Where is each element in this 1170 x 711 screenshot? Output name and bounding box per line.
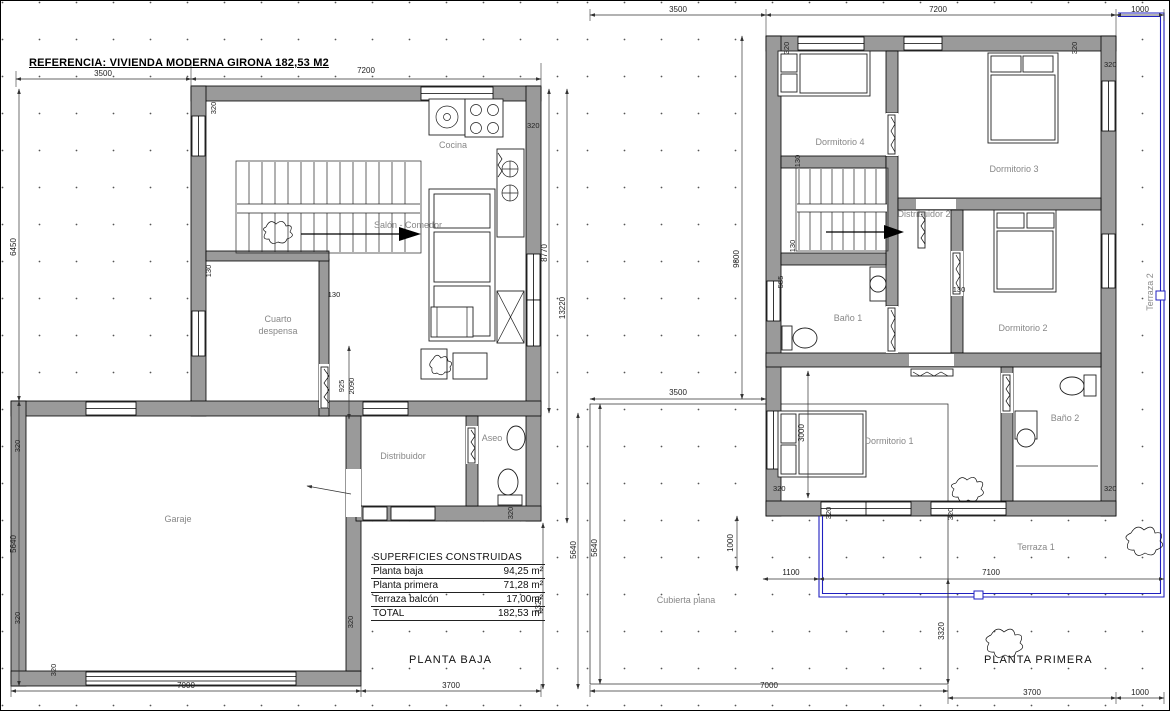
dim-9800: 9800: [732, 250, 741, 268]
dim-7000: 7000: [760, 681, 778, 690]
dim-7000: 7000: [177, 681, 195, 690]
washbasin-icon: [870, 276, 886, 292]
room-label-bano2: Baño 2: [1051, 413, 1080, 423]
wall-130: 130: [953, 285, 966, 294]
table-row: Terraza balcón 17,00m²: [371, 593, 545, 607]
dim-8770: 8770: [540, 244, 549, 262]
bed-icon-dorm2: [994, 210, 1056, 292]
caption-planta-baja: PLANTA BAJA: [409, 654, 492, 666]
sink-icon: [429, 99, 465, 135]
table-row: Planta baja 94,25 m²: [371, 565, 545, 579]
wall-320: 320: [1104, 484, 1117, 493]
room-label-dormitorio4: Dormitorio 4: [815, 137, 864, 147]
wall-320: 320: [527, 121, 540, 130]
wall-320: 320: [824, 507, 833, 520]
washbasin-icon: [1017, 429, 1035, 447]
room-label-distribuidor: Distribuidor: [380, 451, 426, 461]
dim-5640: 5640: [590, 539, 599, 557]
room-label-terraza2: Terraza 2: [1145, 273, 1155, 311]
dim-3700: 3700: [1023, 688, 1041, 697]
row-value: 94,25 m²: [504, 566, 543, 577]
toilet-icon: [498, 469, 518, 495]
door-leaf: [468, 428, 475, 463]
dim-3700: 3700: [442, 681, 460, 690]
dim-13220: 13220: [558, 296, 567, 319]
wall-320: 320: [1104, 60, 1117, 69]
row-value: 182,53 m²: [498, 608, 543, 619]
wall-130: 130: [793, 155, 802, 168]
wall-320: 320: [346, 616, 355, 629]
dim-5640-left: 5640: [9, 535, 18, 553]
dim-3320: 3320: [937, 622, 946, 640]
wall-585: 585: [776, 276, 785, 289]
floorplan-sheet: 3500 7200 6450 5640 8770 13220 3320 5640…: [0, 0, 1170, 711]
bed-icon-dorm1: [778, 411, 866, 477]
row-label: Planta baja: [373, 566, 423, 577]
wall-320: 320: [946, 508, 955, 521]
room-label-cocina: Cocina: [439, 140, 467, 150]
dim-7200: 7200: [929, 5, 947, 14]
room-label-salon: Salón - Comedor: [374, 220, 442, 230]
wall-320: 320: [773, 484, 786, 493]
row-value: 71,28 m²: [504, 580, 543, 591]
row-label: Terraza balcón: [373, 594, 439, 605]
wall-320: 320: [13, 612, 22, 625]
row-label: Planta primera: [373, 580, 438, 591]
wall-130: 130: [788, 240, 797, 253]
dim-3500-mid: 3500: [669, 388, 687, 397]
wall-130: 130: [328, 290, 341, 299]
table-row: Planta primera 71,28 m²: [371, 579, 545, 593]
wall-320: 320: [782, 42, 791, 55]
areas-table-title: SUPERFICIES CONSTRUIDAS: [371, 551, 545, 565]
planta-primera-plan: 3500 7200 1000 9800 3500 5640 1000 1100 …: [586, 1, 1170, 711]
bed-icon-dorm4: [778, 51, 870, 96]
room-label-dormitorio1: Dormitorio 1: [864, 436, 913, 446]
washbasin-icon: [507, 426, 525, 450]
table-row: TOTAL 182,53 m²: [371, 607, 545, 621]
door-leaf: [888, 115, 895, 154]
dim-7200: 7200: [357, 66, 375, 75]
room-label-cuarto: Cuarto: [264, 314, 291, 324]
room-label-terraza1: Terraza 1: [1017, 542, 1055, 552]
room-label-aseo: Aseo: [482, 433, 503, 443]
room-label-cubierta: Cubierta plana: [657, 595, 716, 605]
dim-1000-b: 1000: [1131, 688, 1149, 697]
wall-320: 320: [49, 664, 58, 677]
door-leaf: [888, 308, 895, 351]
wall-320: 320: [506, 507, 515, 520]
caption-planta-primera: PLANTA PRIMERA: [984, 654, 1093, 666]
dim-3000: 3000: [797, 424, 806, 442]
bed-icon-dorm3: [988, 53, 1058, 143]
wall-130: 130: [204, 265, 213, 278]
dim-3500: 3500: [669, 5, 687, 14]
dim-2090: 2090: [347, 378, 356, 395]
wall-320: 320: [209, 102, 218, 115]
room-label-distribuidor2: Distribuidor 2: [897, 209, 950, 219]
room-label-despensa: despensa: [258, 326, 297, 336]
dim-5640-right: 5640: [569, 541, 578, 559]
toilet-icon: [793, 328, 817, 348]
room-label-dormitorio2: Dormitorio 2: [998, 323, 1047, 333]
wall-320: 320: [1070, 42, 1079, 55]
room-label-bano1: Baño 1: [834, 313, 863, 323]
toilet-icon: [1060, 377, 1084, 395]
areas-table: SUPERFICIES CONSTRUIDAS Planta baja 94,2…: [371, 551, 545, 621]
room-label-dormitorio3: Dormitorio 3: [989, 164, 1038, 174]
dim-3500: 3500: [94, 69, 112, 78]
dim-1000-v: 1000: [726, 534, 735, 552]
wall-320: 320: [13, 440, 22, 453]
row-value: 17,00m²: [506, 594, 543, 605]
dim-1100: 1100: [782, 568, 800, 577]
sheet-title: REFERENCIA: VIVIENDA MODERNA GIRONA 182,…: [29, 57, 329, 69]
row-label: TOTAL: [373, 608, 404, 619]
dim-6450: 6450: [9, 238, 18, 256]
dim-1000: 1000: [1131, 5, 1149, 14]
room-label-garaje: Garaje: [164, 514, 191, 524]
dim-7100: 7100: [982, 568, 1000, 577]
dim-925: 925: [337, 380, 346, 393]
